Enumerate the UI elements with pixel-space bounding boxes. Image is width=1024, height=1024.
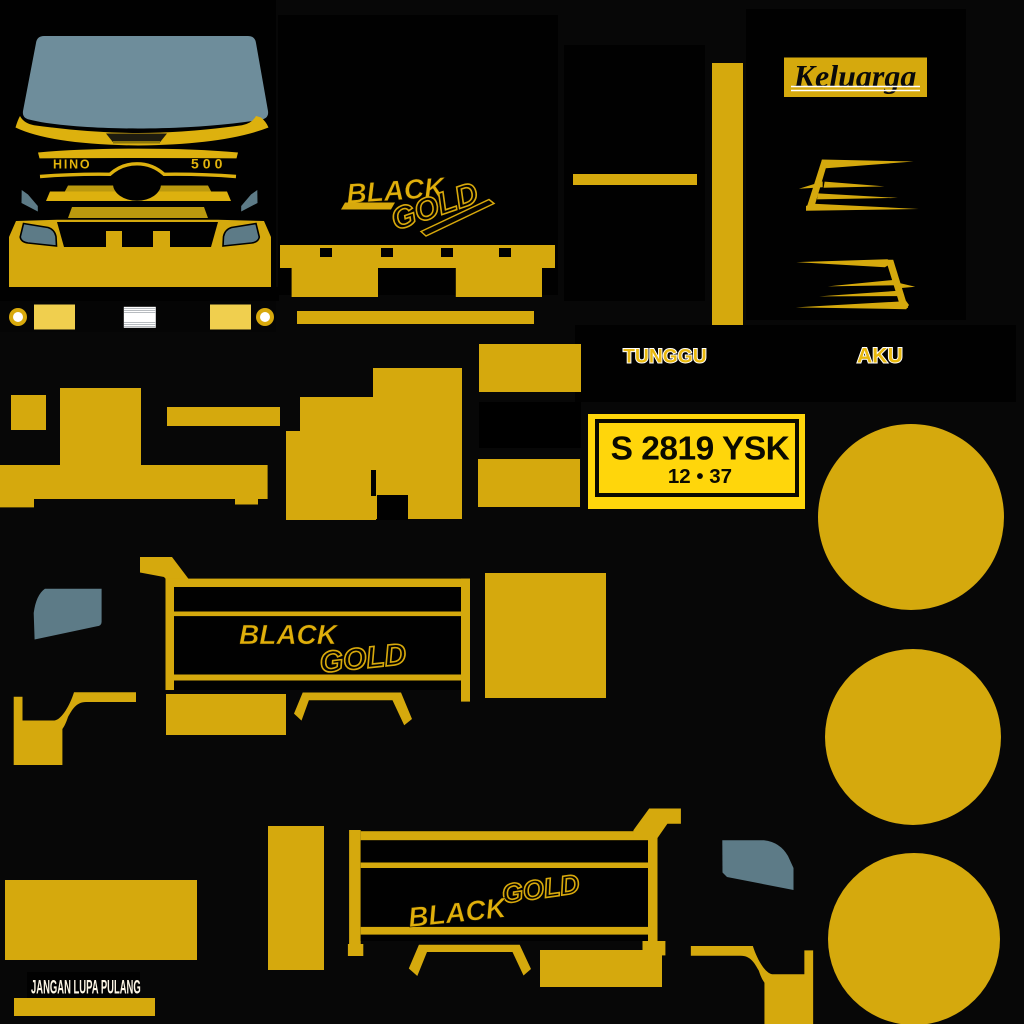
svg-text:Keluarga: Keluarga [793, 58, 917, 94]
svg-text:S 2819 YSK: S 2819 YSK [611, 431, 790, 468]
svg-text:AKU: AKU [857, 345, 903, 368]
svg-text:JANGAN LUPA PULANG: JANGAN LUPA PULANG [31, 977, 141, 999]
svg-text:12 • 37: 12 • 37 [668, 465, 732, 488]
svg-text:500: 500 [191, 156, 226, 172]
svg-text:TUNGGU: TUNGGU [623, 347, 707, 368]
svg-text:HINO: HINO [53, 158, 91, 172]
